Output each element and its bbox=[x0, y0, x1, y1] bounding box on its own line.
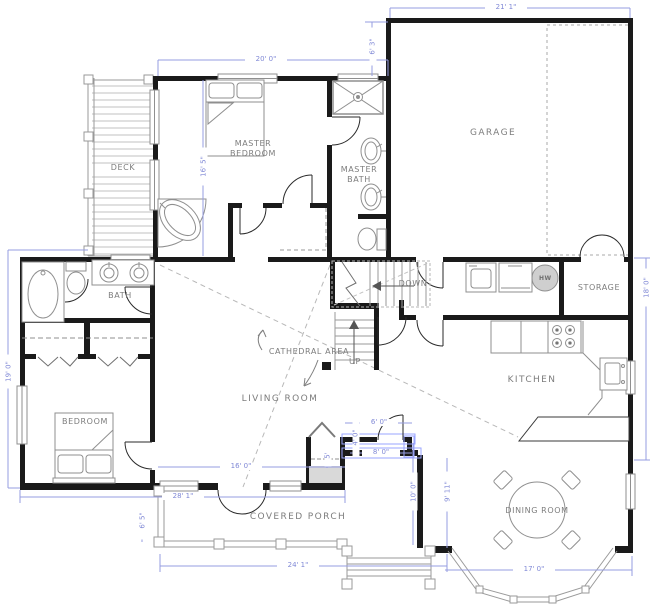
door bbox=[417, 320, 443, 346]
label-covered-porch: COVERED PORCH bbox=[240, 512, 356, 523]
stove bbox=[548, 321, 581, 353]
island bbox=[519, 417, 629, 441]
door bbox=[125, 442, 152, 469]
sink bbox=[361, 184, 386, 210]
shower bbox=[333, 81, 383, 114]
window bbox=[17, 386, 27, 444]
double-door bbox=[580, 235, 624, 257]
label-dining-room: DINING ROOM bbox=[492, 506, 582, 516]
dim-house-width: 28' 1" bbox=[162, 493, 204, 500]
door bbox=[378, 317, 406, 345]
bay-window bbox=[448, 548, 617, 603]
door bbox=[240, 208, 266, 234]
dim-porch-width: 24' 1" bbox=[277, 562, 319, 569]
dim-left-height: 19' 0" bbox=[6, 355, 13, 389]
dim-porch-depth: 6' 5" bbox=[140, 502, 147, 540]
window bbox=[270, 481, 301, 491]
window bbox=[150, 90, 159, 144]
dim-dining-width: 17' 0" bbox=[513, 566, 555, 573]
chair bbox=[493, 530, 513, 550]
label-bedroom: BEDROOM bbox=[55, 417, 115, 427]
chair bbox=[493, 470, 513, 490]
cathedral-lines bbox=[160, 265, 518, 487]
fixtures bbox=[22, 80, 629, 550]
label-storage: STORAGE bbox=[568, 283, 630, 293]
window bbox=[160, 481, 198, 491]
label-up: UP bbox=[342, 357, 368, 367]
jacuzzi-tub bbox=[152, 192, 209, 249]
label-hot-water: HW bbox=[539, 275, 552, 282]
floor-plan: DECK MASTER BEDROOM MASTER BATH GARAGE B… bbox=[0, 0, 653, 615]
door bbox=[283, 175, 312, 204]
label-living-room: LIVING ROOM bbox=[236, 394, 324, 405]
dim-right-height: 18' 0" bbox=[644, 269, 651, 307]
label-deck: DECK bbox=[100, 163, 146, 173]
dim-fireplace-width: 5' bbox=[325, 445, 332, 467]
dim-nook-width2: 8' 0" bbox=[362, 449, 400, 456]
vanity-sinks bbox=[92, 260, 154, 285]
washer bbox=[466, 263, 496, 292]
dim-living-width: 16' 0" bbox=[220, 463, 262, 470]
refrigerator bbox=[491, 321, 521, 353]
chair bbox=[561, 530, 581, 550]
label-master-bath: MASTER BATH bbox=[331, 165, 387, 185]
porch-steps bbox=[342, 546, 435, 589]
dim-master-width: 20' 0" bbox=[245, 56, 287, 63]
toilet bbox=[66, 262, 86, 294]
sink bbox=[361, 138, 386, 164]
label-kitchen: KITCHEN bbox=[502, 375, 562, 386]
dim-garage-setback: 6' 3" bbox=[370, 28, 377, 66]
dim-nook-width: 6' 0" bbox=[360, 419, 398, 426]
dim-deck-length: 16' 5" bbox=[201, 148, 208, 186]
double-door bbox=[218, 490, 266, 514]
label-bath: BATH bbox=[100, 291, 140, 301]
dim-nook-depth: 4' 0" bbox=[353, 419, 360, 457]
label-cathedral-area: CATHEDRAL AREA bbox=[250, 347, 368, 357]
label-master-bedroom: MASTER BEDROOM bbox=[220, 139, 286, 159]
cathedral-arrows bbox=[258, 330, 318, 386]
kitchen-sink bbox=[600, 358, 627, 390]
chair bbox=[561, 470, 581, 490]
garage-parking-area bbox=[547, 25, 629, 255]
dryer bbox=[499, 263, 532, 292]
dim-dining-depth: 10' 0" bbox=[411, 473, 418, 511]
door bbox=[332, 117, 360, 145]
dim-garage-width: 21' 1" bbox=[485, 4, 527, 11]
dim-dining-depth2: 9' 11" bbox=[445, 472, 452, 512]
window bbox=[626, 474, 635, 509]
toilet bbox=[358, 228, 386, 250]
label-down: DOWN bbox=[392, 279, 434, 289]
counter bbox=[521, 321, 548, 353]
bathtub bbox=[22, 262, 64, 322]
label-garage: GARAGE bbox=[448, 128, 538, 139]
